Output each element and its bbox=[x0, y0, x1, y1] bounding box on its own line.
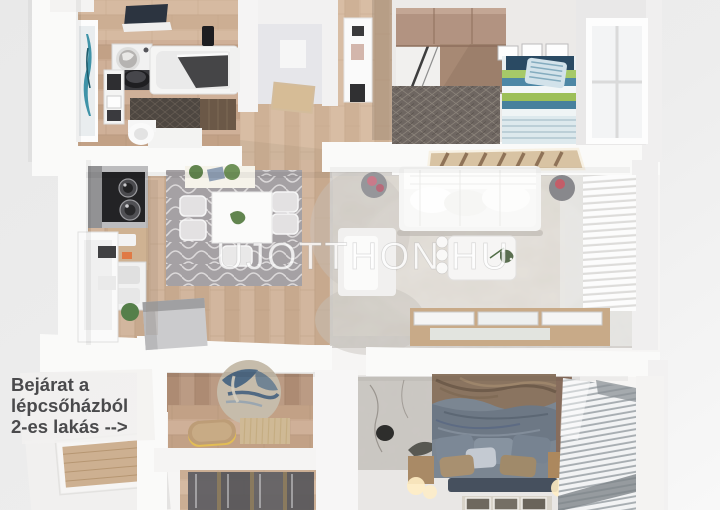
svg-text:HU: HU bbox=[451, 236, 511, 278]
svg-text:lépcsőházból: lépcsőházból bbox=[11, 395, 128, 416]
svg-text:Bejárat a: Bejárat a bbox=[11, 374, 90, 395]
svg-text:UJOTTHON: UJOTTHON bbox=[216, 236, 441, 278]
svg-text:2-es lakás -->: 2-es lakás --> bbox=[11, 416, 128, 437]
